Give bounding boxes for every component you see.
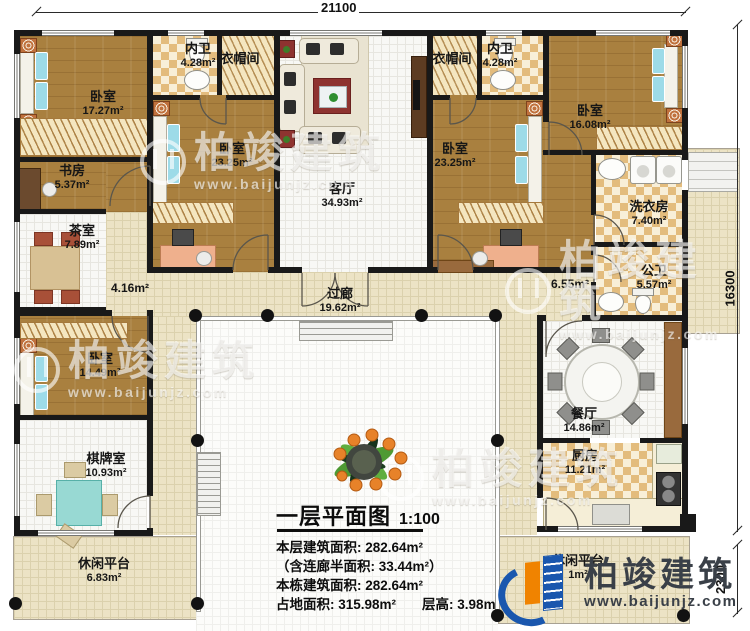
wall-segment (594, 242, 684, 247)
sofa-cushion-icon (284, 100, 296, 114)
coffee-table-icon (319, 86, 347, 108)
stat-corridor-half-area: （含连廊半面积: 33.44m²） (276, 557, 496, 576)
steps-icon (688, 152, 738, 192)
pillow-icon (167, 156, 180, 184)
nightstand-icon (20, 338, 37, 353)
door-opening (682, 160, 688, 190)
room-name: 衣帽间 (220, 52, 259, 67)
room-label-living: 客厅34.93m² (322, 182, 363, 209)
room-label-public-wc: 公卫5.57m² (637, 264, 672, 291)
wall-segment (473, 267, 595, 273)
bench-icon (197, 452, 221, 516)
window-icon (14, 54, 20, 118)
mahjong-table-icon (56, 480, 102, 526)
window-icon (42, 30, 114, 36)
room-label-chess: 棋牌室10.93m² (86, 452, 127, 479)
column-icon (415, 309, 428, 322)
floor-walk-right (498, 320, 537, 535)
brand-logo-icon (498, 550, 578, 618)
wall-segment (147, 30, 153, 273)
fridge-icon (656, 444, 682, 464)
room-label-bedroom-bl: 卧室14.49m² (80, 352, 121, 379)
room-label-kitchen: 厨房11.21m² (565, 449, 605, 476)
sofa-cushion-icon (284, 72, 296, 86)
window-icon (14, 222, 20, 292)
column-icon (191, 597, 204, 610)
room-label-study: 书房5.37m² (55, 164, 90, 191)
room-label-bedroom-r: 卧室23.25m² (435, 142, 476, 169)
bed-headboard-icon (664, 44, 678, 108)
sink-icon (598, 158, 626, 180)
room-label-cloak-right: 衣帽间 (432, 52, 471, 67)
window-icon (596, 30, 670, 36)
chair-icon (548, 373, 563, 391)
plan-scale: 1:100 (399, 511, 440, 529)
column-icon (261, 309, 274, 322)
room-name: 厨房 (565, 449, 605, 464)
nightstand-icon (666, 108, 683, 123)
room-name: 餐厅 (564, 407, 605, 422)
room-area: 6.83m² (78, 572, 130, 584)
wall-segment (147, 528, 153, 536)
room-name: 内卫 (483, 42, 518, 57)
floor-walk-left (150, 316, 196, 535)
room-area: 4.16m² (111, 282, 149, 295)
room-name: 棋牌室 (86, 452, 127, 467)
window-icon (38, 530, 114, 536)
room-name: 卧室 (435, 142, 476, 157)
room-area: 10.93m² (86, 467, 127, 479)
nightstand-icon (526, 101, 543, 116)
window-icon (14, 338, 20, 404)
dimension-line-top (36, 12, 686, 13)
logo-blue-tower (543, 554, 563, 611)
room-label-bedroom-l: 卧室23.25m² (212, 142, 253, 169)
tv-icon (413, 80, 420, 110)
pillow-icon (652, 48, 665, 74)
title-underline (277, 529, 423, 532)
room-area: 23.25m² (435, 157, 476, 169)
plan-stats: 本层建筑面积: 282.64m² （含连廊半面积: 33.44m²） 本栋建筑面… (276, 538, 496, 614)
room-label-dining: 餐厅14.86m² (564, 407, 605, 434)
window-icon (14, 444, 20, 516)
wall-segment (14, 209, 106, 214)
room-label-bedroom-tr: 卧室16.08m² (570, 104, 611, 131)
room-label-corridor: 过廊19.62m² (320, 287, 361, 314)
wall-segment (14, 415, 150, 420)
room-area: 34.93m² (322, 197, 363, 209)
room-area: 4.28m² (181, 57, 216, 69)
logo-orange-tower (525, 561, 540, 605)
room-area: 4.28m² (483, 57, 518, 69)
sofa-cushion-icon (330, 43, 344, 55)
stat-floor-height: 层高: 3.98m (422, 595, 496, 614)
pillow-icon (515, 156, 528, 184)
room-area: 14.49m² (80, 367, 121, 379)
wall-segment (543, 30, 549, 122)
stat-building-area: 本栋建筑面积: 282.64m² (276, 576, 496, 595)
wall-segment (537, 438, 590, 443)
chair-icon (34, 290, 53, 304)
wall-segment (147, 310, 153, 496)
wall-segment (537, 315, 543, 498)
chair-icon (34, 232, 53, 246)
tea-table-icon (30, 246, 80, 290)
wall-segment (476, 95, 546, 100)
chair-icon (36, 494, 52, 516)
wardrobe-icon (458, 202, 544, 224)
column-icon (489, 309, 502, 322)
window-icon (486, 30, 522, 36)
chair-icon (64, 462, 86, 478)
room-label-laundry: 洗衣房7.40m² (629, 200, 668, 227)
wall-segment (226, 95, 277, 100)
sink-icon (184, 70, 210, 90)
sideboard-icon (664, 322, 682, 438)
sink-icon (598, 292, 624, 312)
pillow-icon (515, 124, 528, 152)
sofa-cushion-icon (306, 43, 320, 55)
room-label-bath-right: 内卫4.28m² (483, 42, 518, 69)
room-label-hall-right: 6.55m² (551, 278, 589, 291)
wall-segment (477, 34, 482, 95)
wall-segment (640, 438, 688, 443)
brand-name: 柏竣建筑 (584, 558, 737, 594)
wall-segment (591, 155, 596, 215)
sofa-cushion-icon (308, 132, 322, 144)
wall-segment (14, 157, 150, 162)
pillow-icon (652, 76, 665, 102)
plan-title: 一层平面图 1:100 (276, 499, 440, 531)
window-icon (290, 30, 382, 36)
chair-icon (592, 328, 610, 343)
wall-segment (430, 95, 450, 100)
nightstand-icon (153, 101, 170, 116)
wall-segment (147, 267, 233, 273)
kitchen-sink-icon (592, 504, 630, 525)
washing-machine-icon (656, 156, 682, 184)
room-area: 6.55m² (551, 278, 589, 291)
room-name: 休闲平台 (78, 557, 130, 572)
wardrobe-icon (152, 202, 234, 224)
bed-headboard-icon (528, 116, 542, 204)
room-label-tea: 茶室7.89m² (65, 224, 100, 251)
window-icon (168, 30, 204, 36)
window-icon (682, 348, 688, 424)
washing-machine-icon (630, 156, 656, 184)
room-name: 茶室 (65, 224, 100, 239)
study-desk-icon (19, 168, 41, 210)
room-name: 内卫 (181, 42, 216, 57)
room-area: 19.62m² (320, 302, 361, 314)
room-name: 卧室 (212, 142, 253, 157)
pillow-icon (35, 384, 48, 410)
plant-icon (312, 422, 416, 498)
column-icon (191, 434, 204, 447)
bed-headboard-icon (153, 116, 167, 204)
room-area: 23.25m² (212, 157, 253, 169)
room-name: 公卫 (637, 264, 672, 279)
stat-land-area: 占地面积: 315.98m² (276, 595, 396, 614)
column-icon (491, 434, 504, 447)
room-label-porch-left: 休闲平台6.83m² (78, 557, 130, 584)
stove-icon (656, 472, 681, 506)
wall-pillar (680, 514, 696, 532)
wardrobe-icon (20, 118, 148, 156)
room-name: 卧室 (570, 104, 611, 119)
room-name: 过廊 (320, 287, 361, 302)
chair-icon (640, 373, 655, 391)
computer-icon (172, 229, 194, 246)
column-icon (189, 309, 202, 322)
bed-headboard-icon (20, 48, 34, 114)
room-area: 11.21m² (565, 464, 605, 476)
room-area: 7.40m² (629, 215, 668, 227)
computer-icon (500, 229, 522, 246)
room-area: 16.08m² (570, 119, 611, 131)
chair-icon (196, 251, 212, 266)
floor-plan: 卧室17.27m² 内卫4.28m² 衣帽间 卧室23.25m² 书房5.37m… (0, 0, 750, 631)
bed-headboard-icon (20, 350, 34, 416)
wall-segment (274, 30, 280, 273)
room-area: 5.57m² (637, 279, 672, 291)
window-icon (682, 46, 688, 108)
room-name: 卧室 (83, 90, 124, 105)
wall-segment (582, 315, 688, 321)
room-area: 7.89m² (65, 239, 100, 251)
bench-icon (299, 321, 393, 341)
wardrobe-icon (20, 322, 128, 339)
chair-icon (472, 251, 488, 266)
room-area: 5.37m² (55, 179, 90, 191)
room-name: 客厅 (322, 182, 363, 197)
column-icon (9, 597, 22, 610)
room-label-hall-left: 4.16m² (111, 282, 149, 295)
wall-segment (150, 95, 200, 100)
sink-icon (490, 70, 516, 90)
room-name: 洗衣房 (629, 200, 668, 215)
room-name: 书房 (55, 164, 90, 179)
sofa-cushion-icon (332, 132, 346, 144)
plan-title-text: 一层平面图 (276, 499, 391, 531)
pillow-icon (35, 356, 48, 382)
nightstand-icon (20, 38, 37, 53)
chair-icon (102, 494, 118, 516)
room-label-bath-left: 内卫4.28m² (181, 42, 216, 69)
chair-icon (61, 290, 80, 304)
pillow-icon (35, 52, 48, 80)
stat-floor-area: 本层建筑面积: 282.64m² (276, 538, 496, 557)
wall-segment (14, 310, 112, 316)
dimension-right-label: 16300 (723, 270, 738, 306)
room-name: 衣帽间 (432, 52, 471, 67)
brand-url: www.baijunjz.com (584, 593, 737, 610)
room-label-cloak-left: 衣帽间 (220, 52, 259, 67)
room-area: 17.27m² (83, 105, 124, 117)
room-label-bedroom-tl: 卧室17.27m² (83, 90, 124, 117)
brand-logo: 柏竣建筑 www.baijunjz.com (498, 550, 737, 618)
pillow-icon (35, 82, 48, 110)
room-area: 14.86m² (564, 422, 605, 434)
window-icon (558, 526, 642, 532)
floor-hall-wood (106, 162, 150, 212)
wall-segment (543, 150, 688, 155)
pillow-icon (167, 124, 180, 152)
room-name: 卧室 (80, 352, 121, 367)
dimension-top-label: 21100 (318, 0, 359, 15)
